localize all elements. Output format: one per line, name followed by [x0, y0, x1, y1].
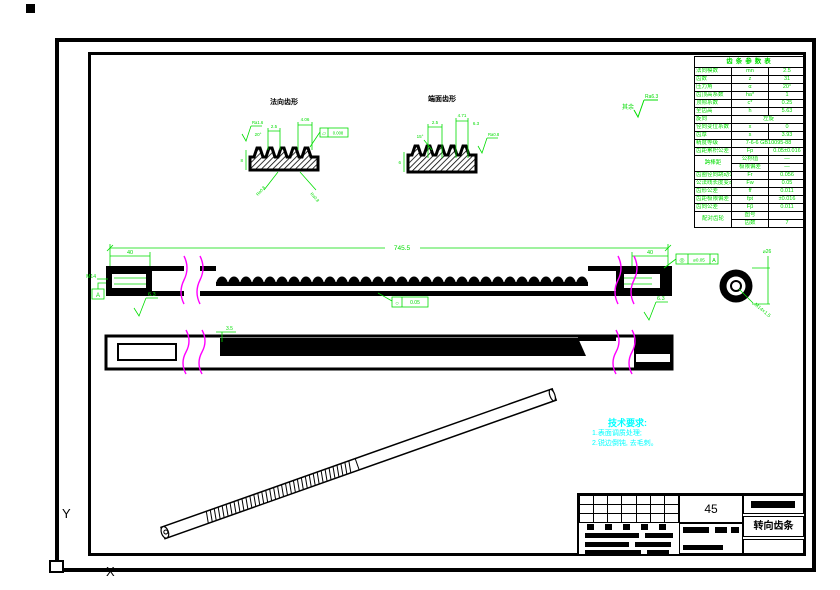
signature-blob [585, 533, 639, 538]
roughness-value: 6.3 [657, 296, 665, 302]
table-row: 顶隙系数c*0.25 [695, 100, 806, 108]
param-group-label: 配对齿轮 [695, 212, 732, 228]
param-label: 齿数 [695, 76, 732, 84]
rack-front-view: 745.5 40 40 A M14 6.3 ○ 0.05 ◎ ⌀0.05 A 6… [86, 244, 771, 320]
param-value: 5.63 [769, 108, 806, 116]
param-symbol: mn [732, 68, 769, 76]
param-value: 0.05 [769, 180, 806, 188]
param-symbol: z [732, 76, 769, 84]
param-label: 全齿高 [695, 108, 732, 116]
signature-blob [659, 524, 666, 530]
param-label: 齿向公差 [695, 204, 732, 212]
ucs-y-label: Y [62, 506, 71, 521]
break-line [181, 256, 187, 304]
param-symbol: h [732, 108, 769, 116]
dim-text: 40 [647, 250, 653, 256]
dim-text: 8 [240, 158, 243, 163]
param-label: 径向变位系数 [695, 124, 732, 132]
param-value: 左旋 [732, 116, 806, 124]
table-row: 齿向公差Fβ0.011 [695, 204, 806, 212]
param-label: 精度等级 [695, 140, 732, 148]
dim-text: 20° [255, 132, 262, 137]
signature-blob [587, 524, 594, 530]
tolerance-value: ⌀0.05 [693, 258, 705, 263]
param-label: 齿圈径向跳动公差 [695, 172, 732, 180]
tolerance-symbol: ○ [395, 301, 399, 307]
param-label: 齿距累积公差 [695, 148, 732, 156]
param-value: — [769, 156, 806, 164]
tolerance-datum: A [712, 258, 716, 264]
rack-side-view: 3.5 [106, 326, 672, 369]
gear-parameter-table: 齿条参数表 法向模数mn2.5 齿数z31 压力角α20° 齿顶高系数ha*1 … [694, 56, 806, 228]
param-label: 齿厚 [695, 132, 732, 140]
thread-callout: M14 [86, 274, 96, 280]
scale-blob [731, 527, 739, 533]
dim-text: 2.5 [271, 124, 278, 129]
signature-blob [635, 542, 671, 547]
param-value: 0 [769, 124, 806, 132]
param-label: 极限偏差 [732, 164, 769, 172]
table-row: 径向变位系数x0 [695, 124, 806, 132]
tech-req-item: 1.表面调质处理; [592, 429, 712, 439]
title-block: 45 转向齿条 [577, 493, 806, 556]
param-value: 3.93 [769, 132, 806, 140]
signature-blob [623, 524, 630, 530]
param-value: 7-6-6 GB10095-88 [732, 140, 806, 148]
thread-callout: M14×1.5 [753, 302, 772, 319]
table-row: 齿数z31 [695, 76, 806, 84]
param-label: 旋向 [695, 116, 732, 124]
table-row: 齿厚s3.93 [695, 132, 806, 140]
technical-requirements: 技术要求: 1.表面调质处理; 2.锐边倒钝, 去毛刺。 [592, 416, 712, 449]
rack-isometric-view [160, 389, 557, 540]
roughness-value: Ra0.8 [488, 132, 500, 137]
table-row: 齿形公差ff0.011 [695, 188, 806, 196]
param-symbol: Fr [732, 172, 769, 180]
param-label: 齿距极限偏差 [695, 196, 732, 204]
param-label: 法向模数 [695, 68, 732, 76]
table-row: 法向模数mn2.5 [695, 68, 806, 76]
tolerance-symbol: ▱ [322, 131, 326, 137]
param-value: 7 [769, 220, 806, 228]
general-roughness-note: 其余 Ra6.3 [622, 94, 659, 117]
dim-text: 40 [127, 250, 133, 256]
signature-blob [605, 524, 612, 530]
param-label: 公法线长度变动公差 [695, 180, 732, 188]
ucs-x-label: X [106, 564, 115, 579]
table-row: 精度等级7-6-6 GB10095-88 [695, 140, 806, 148]
roughness-value: Ra0.8 [255, 185, 267, 197]
param-label: 压力角 [695, 84, 732, 92]
table-row: 齿距累积公差Fp0.05±0.016 [695, 148, 806, 156]
param-value: 0.011 [769, 188, 806, 196]
company-blob [751, 501, 795, 508]
param-value: 0.011 [769, 204, 806, 212]
signature-blob [585, 542, 629, 547]
param-label: 顶隙系数 [695, 100, 732, 108]
table-row: 齿距极限偏差fpt±0.016 [695, 196, 806, 204]
roughness-value: Ra1.6 [252, 120, 264, 125]
tolerance-value: 0.008 [333, 131, 344, 136]
table-row: 齿顶高系数ha*1 [695, 92, 806, 100]
scale-blob [683, 545, 723, 550]
param-value: 0.05±0.016 [769, 148, 806, 156]
roughness-icon [634, 100, 658, 117]
param-symbol: x [732, 124, 769, 132]
param-label: 图号 [732, 212, 769, 220]
title-block-grid [579, 495, 679, 523]
detail-view-left: 法向齿形 2.5 4.06 20° 8 Ra1.6 ▱ 0.008 Ra0.8 [240, 97, 348, 203]
param-label: 齿形公差 [695, 188, 732, 196]
param-symbol: Fβ [732, 204, 769, 212]
dim-text: 4.06 [301, 117, 310, 122]
scale-blob [715, 527, 727, 533]
param-value: 1 [769, 92, 806, 100]
param-group-label: 跨棒距 [695, 156, 732, 172]
note-prefix: 其余 [622, 103, 634, 111]
param-value: 31 [769, 76, 806, 84]
signature-blob [641, 524, 648, 530]
dim-text: 3.5 [226, 326, 233, 332]
gear-table-title: 齿条参数表 [695, 57, 806, 68]
dim-text: 15° [417, 134, 424, 139]
tech-req-title: 技术要求: [608, 416, 712, 429]
detail-right-label: 端面齿形 [428, 94, 456, 103]
param-value: 0.25 [769, 100, 806, 108]
param-value [769, 212, 806, 220]
param-symbol: c* [732, 100, 769, 108]
part-name-cell: 转向齿条 [743, 516, 804, 537]
roughness-value: Ra6.3 [645, 94, 659, 100]
param-symbol: fpt [732, 196, 769, 204]
dim-overall-length: 745.5 [394, 245, 411, 252]
param-symbol: s [732, 132, 769, 140]
material-cell: 45 [679, 495, 743, 523]
param-symbol: ha* [732, 92, 769, 100]
datum-label: A [96, 293, 100, 299]
tolerance-value: 0.05 [410, 300, 420, 306]
dim-text: 2.5 [432, 120, 439, 125]
tech-req-item: 2.锐边倒钝, 去毛刺。 [592, 439, 712, 449]
ucs-icon: Y X [50, 506, 115, 579]
dim-text: 6 [398, 160, 401, 165]
signature-blob [585, 550, 641, 554]
drawing-no-cell [743, 539, 804, 554]
param-label: 公称值 [732, 156, 769, 164]
param-label: 齿数 [732, 220, 769, 228]
roughness-value: 6.3 [148, 292, 156, 298]
param-symbol: ff [732, 188, 769, 196]
param-label: 齿顶高系数 [695, 92, 732, 100]
dim-text: 4.71 [458, 113, 467, 118]
ucs-origin-box [50, 561, 63, 572]
param-symbol: Fw [732, 180, 769, 188]
table-row: 跨棒距公称值— [695, 156, 806, 164]
param-value: 20° [769, 84, 806, 92]
table-row: 旋向左旋 [695, 116, 806, 124]
param-symbol: α [732, 84, 769, 92]
signature-blob [645, 533, 673, 538]
table-row: 公法线长度变动公差Fw0.05 [695, 180, 806, 188]
dim-text: ⌀26 [763, 249, 772, 255]
table-row: 齿圈径向跳动公差Fr0.056 [695, 172, 806, 180]
rack-tooth-profile-left [250, 148, 318, 170]
rack-teeth [216, 277, 588, 286]
roughness-value: Ra0.8 [309, 191, 321, 203]
table-row: 配对齿轮图号 [695, 212, 806, 220]
param-value: 2.5 [769, 68, 806, 76]
param-value: 0.056 [769, 172, 806, 180]
dim-text: 6.3 [473, 121, 480, 126]
break-line [197, 256, 203, 304]
scale-blob [683, 527, 709, 533]
cad-sheet: 法向齿形 2.5 4.06 20° 8 Ra1.6 ▱ 0.008 Ra0.8 [0, 0, 840, 590]
table-row: 全齿高h5.63 [695, 108, 806, 116]
param-value: ±0.016 [769, 196, 806, 204]
tolerance-symbol: ◎ [679, 258, 684, 264]
table-row: 压力角α20° [695, 84, 806, 92]
detail-left-label: 法向齿形 [270, 97, 298, 106]
param-value: — [769, 164, 806, 172]
detail-view-right: 端面齿形 2.5 4.71 6.3 15° 6 Ra0.8 [398, 94, 499, 172]
param-symbol: Fp [732, 148, 769, 156]
signature-blob [647, 550, 669, 554]
